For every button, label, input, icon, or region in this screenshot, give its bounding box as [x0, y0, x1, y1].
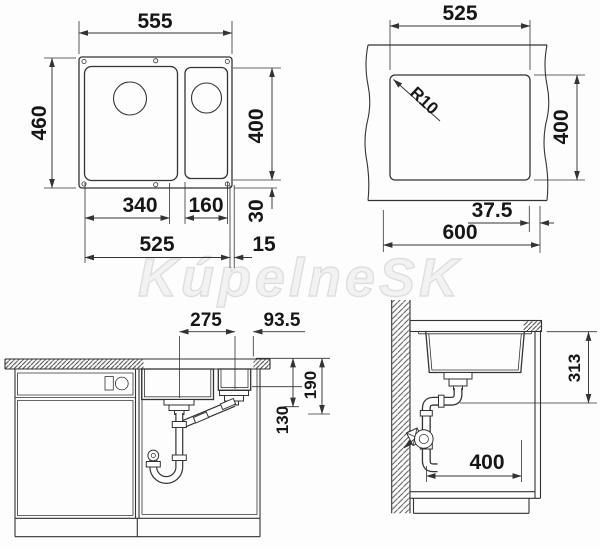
fixing-holes	[82, 59, 230, 187]
worktop-hatch-left	[5, 359, 144, 369]
worktop-edges	[368, 45, 547, 201]
pipe-coupling	[420, 411, 432, 417]
front-view: 275 93.5 190 130	[5, 310, 330, 537]
dim-drain-edge-distance: 93.5	[264, 310, 301, 331]
dim-overall-depth: 460	[28, 105, 51, 140]
cutout-view: 525 R10 400 37.5 600	[365, 2, 585, 253]
pipe-coupling	[146, 462, 160, 468]
trap-inlet-cap	[148, 450, 159, 461]
pipe-coupling	[439, 395, 445, 407]
sink-technical-drawing: KúpelneSK 555 460 400 340 160	[0, 0, 600, 548]
wall-hatch	[392, 300, 410, 513]
bowl-side-outer	[426, 332, 525, 373]
worktop-hatch-right	[254, 359, 271, 369]
small-bowl-front-inner	[221, 369, 248, 388]
worktop-broken-edge-right	[544, 45, 549, 201]
left-unit-control-rect	[105, 377, 113, 391]
dim-small-bowl-depth: 130	[273, 406, 292, 434]
left-unit-fronts	[15, 373, 136, 516]
drawing-page: KúpelneSK 555 460 400 340 160	[0, 0, 600, 548]
dim-cabinet-width: 600	[442, 221, 477, 244]
main-bowl-plan	[85, 67, 178, 181]
dim-cabinet-depth: 400	[469, 451, 504, 474]
small-bowl-front	[218, 369, 250, 390]
dim-bowl-length: 400	[245, 108, 268, 143]
dim-rear-offset: 30	[245, 199, 268, 222]
pipe-coupling	[172, 455, 186, 461]
top-view: 555 460 400 340 160 30 525 15	[28, 10, 281, 268]
dim-install-height: 313	[565, 354, 584, 382]
worktop-side-hatch	[524, 321, 542, 331]
dim-main-bowl-depth: 190	[301, 371, 320, 399]
watermark-text: KúpelneSK	[138, 248, 462, 308]
main-bowl-front	[142, 369, 214, 400]
main-bowl-front-inner	[144, 369, 210, 397]
dim-edge-distance: 37.5	[472, 199, 513, 222]
dim-main-bowl-width: 340	[122, 194, 157, 217]
dim-cutout-depth: 400	[550, 109, 573, 144]
plinth-band	[15, 518, 260, 536]
left-unit-control-knob	[115, 377, 128, 390]
side-view: 313 400	[392, 300, 597, 513]
pipe-coupling	[172, 422, 186, 428]
sink-outer-rim	[79, 57, 232, 188]
dim-cutout-width: 525	[442, 2, 477, 25]
main-drain-plan	[114, 82, 147, 115]
ext-drain-positions	[180, 336, 254, 398]
bowl-side-inner	[429, 334, 522, 370]
dim-corner-radius: R10	[406, 83, 442, 118]
small-drain-plan	[192, 83, 222, 113]
small-bowl-plan	[185, 68, 228, 179]
worktop-broken-edge-left	[365, 45, 370, 201]
side-drain	[444, 373, 472, 390]
trap-ring	[415, 430, 434, 449]
worktop-side	[410, 321, 542, 332]
dim-bowls-width: 525	[139, 233, 174, 256]
dim-side-offset: 15	[252, 233, 276, 256]
dim-overall-width: 555	[137, 10, 172, 33]
dim-small-bowl-width: 160	[188, 194, 223, 217]
dim-drain-spacing: 275	[190, 310, 222, 331]
main-drain-front	[164, 400, 194, 415]
